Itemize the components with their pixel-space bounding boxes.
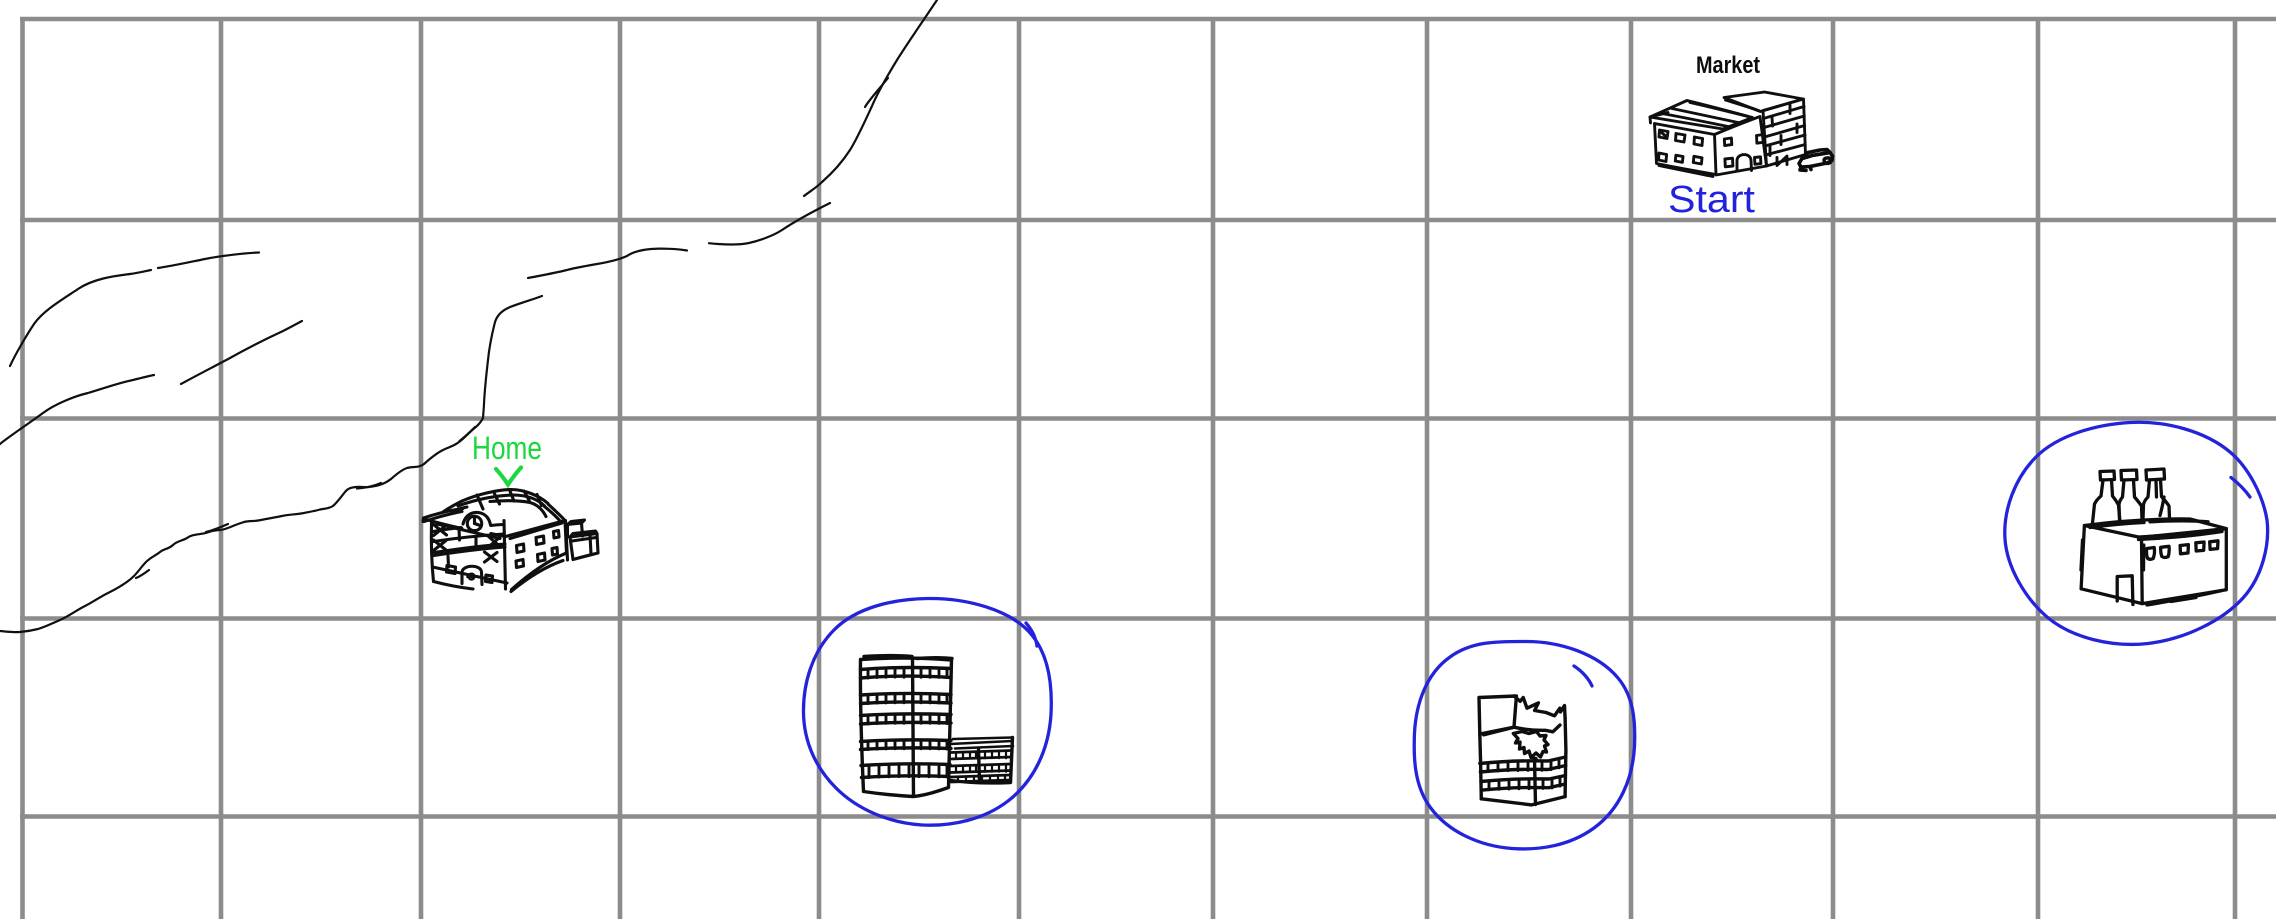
svg-text:Start: Start (1668, 179, 1755, 221)
svg-text:Home: Home (472, 430, 542, 466)
svg-text:Market: Market (1696, 52, 1760, 79)
